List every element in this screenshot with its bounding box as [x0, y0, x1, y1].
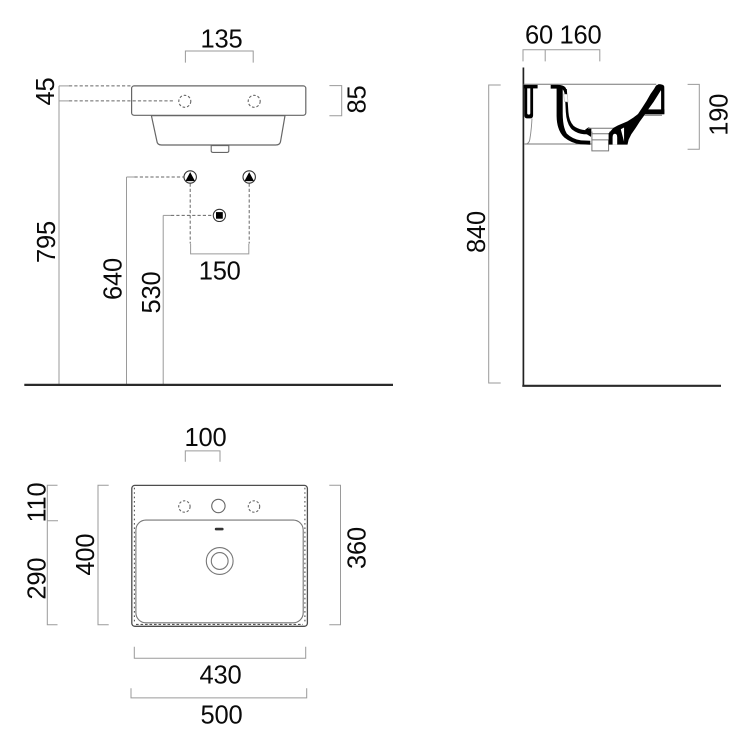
svg-text:160: 160: [560, 21, 602, 49]
svg-text:190: 190: [706, 94, 734, 136]
svg-text:85: 85: [344, 86, 372, 114]
svg-text:360: 360: [343, 527, 371, 569]
svg-text:45: 45: [32, 78, 60, 106]
svg-text:135: 135: [201, 26, 243, 54]
svg-text:290: 290: [24, 558, 52, 600]
svg-text:500: 500: [201, 702, 243, 730]
svg-text:430: 430: [200, 662, 242, 690]
svg-text:795: 795: [33, 221, 61, 263]
svg-text:150: 150: [199, 257, 241, 285]
svg-text:530: 530: [138, 272, 166, 314]
svg-text:100: 100: [185, 424, 227, 452]
svg-text:640: 640: [100, 258, 128, 300]
svg-text:400: 400: [72, 534, 100, 576]
svg-text:840: 840: [463, 211, 491, 253]
svg-text:60: 60: [525, 21, 553, 49]
svg-text:110: 110: [24, 482, 52, 522]
